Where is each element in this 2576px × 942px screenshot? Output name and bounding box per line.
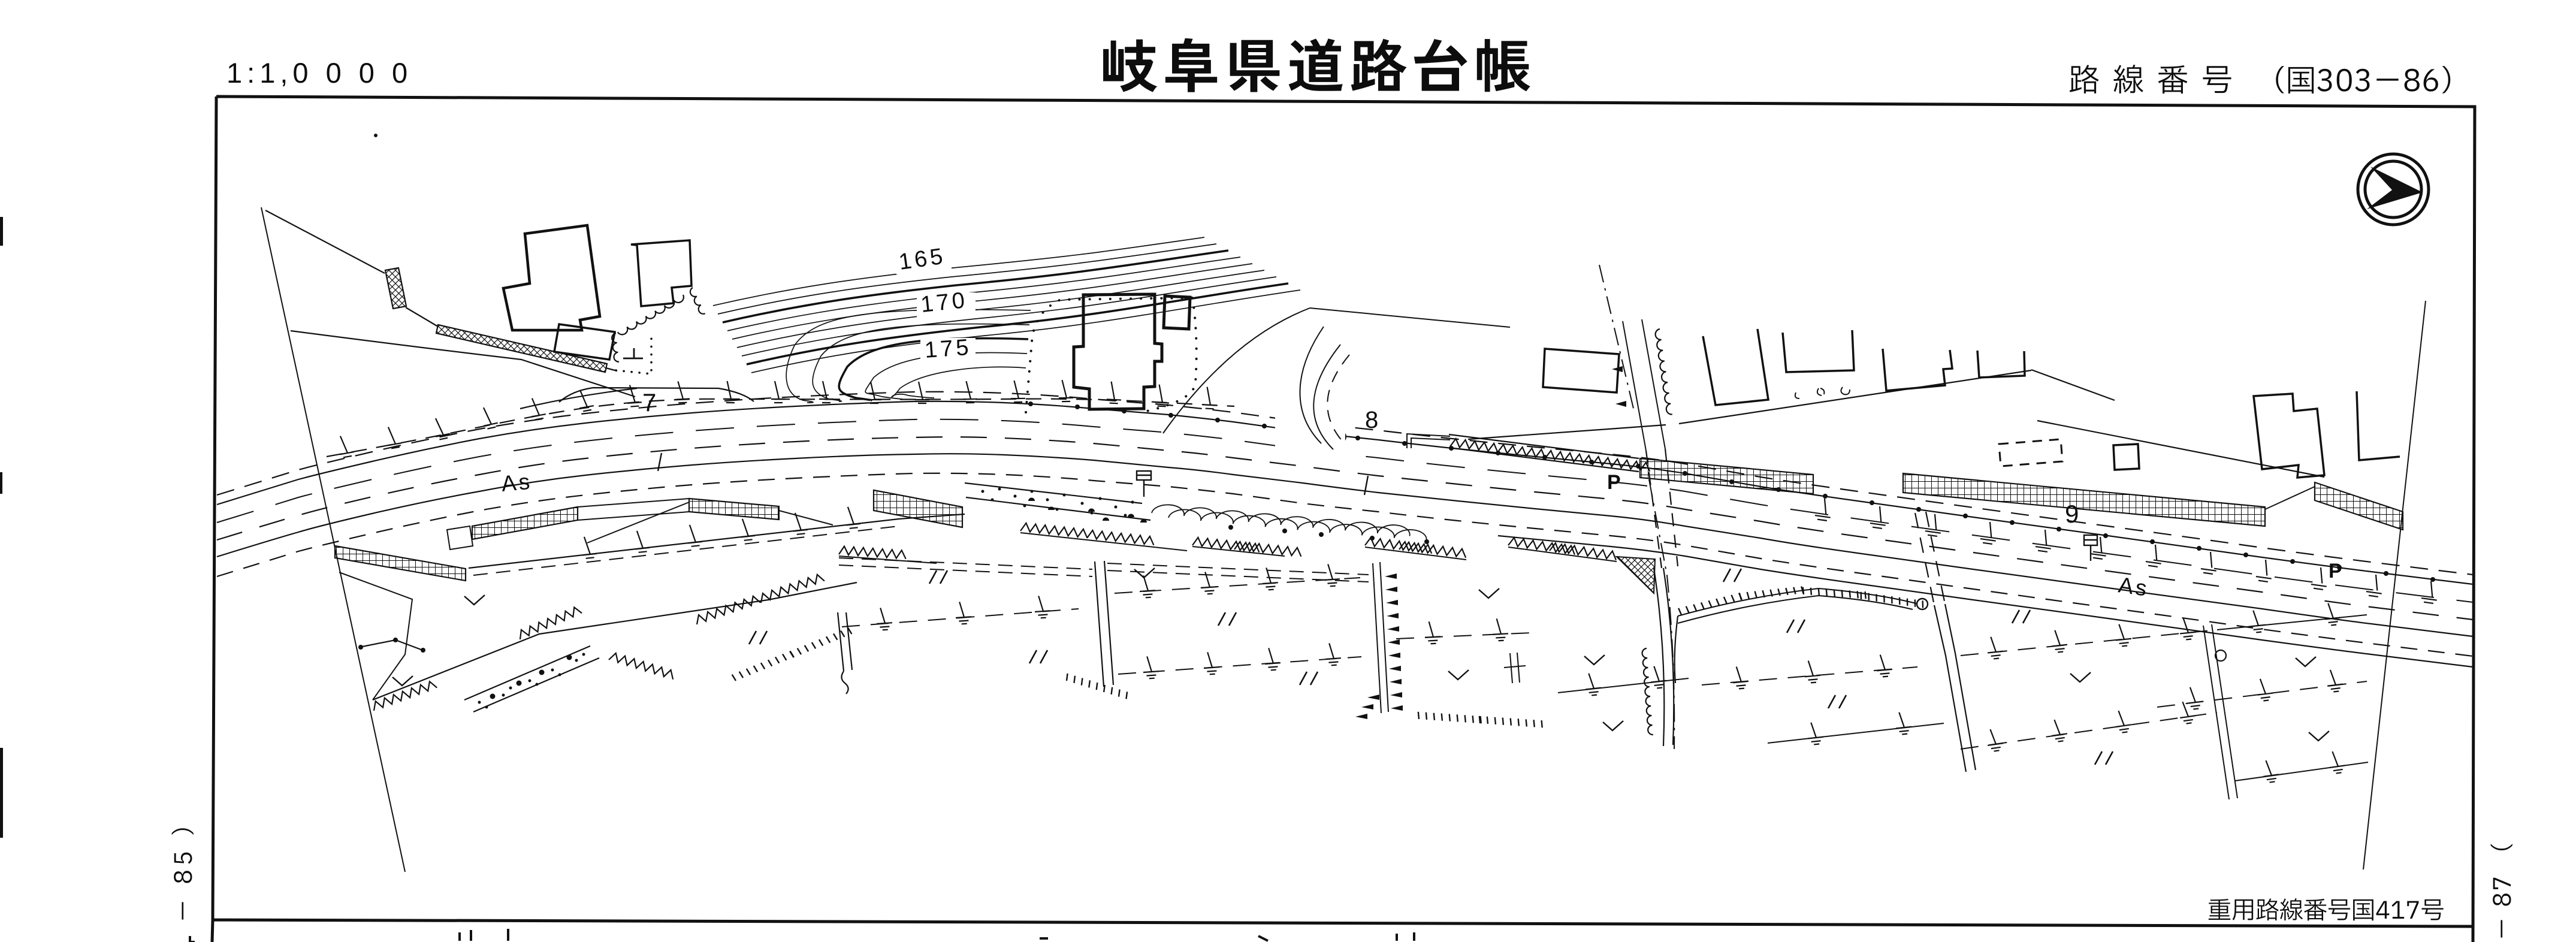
svg-text:170: 170 xyxy=(920,288,969,318)
svg-text:7: 7 xyxy=(642,388,656,416)
svg-text:8: 8 xyxy=(1365,407,1378,433)
svg-text:P: P xyxy=(2329,560,2342,582)
svg-text:As: As xyxy=(500,469,533,496)
svg-text:175: 175 xyxy=(924,335,973,363)
svg-text:1:1,0 0 0 0: 1:1,0 0 0 0 xyxy=(227,57,412,89)
svg-text:As: As xyxy=(2117,572,2151,601)
svg-text:P: P xyxy=(1607,471,1621,494)
